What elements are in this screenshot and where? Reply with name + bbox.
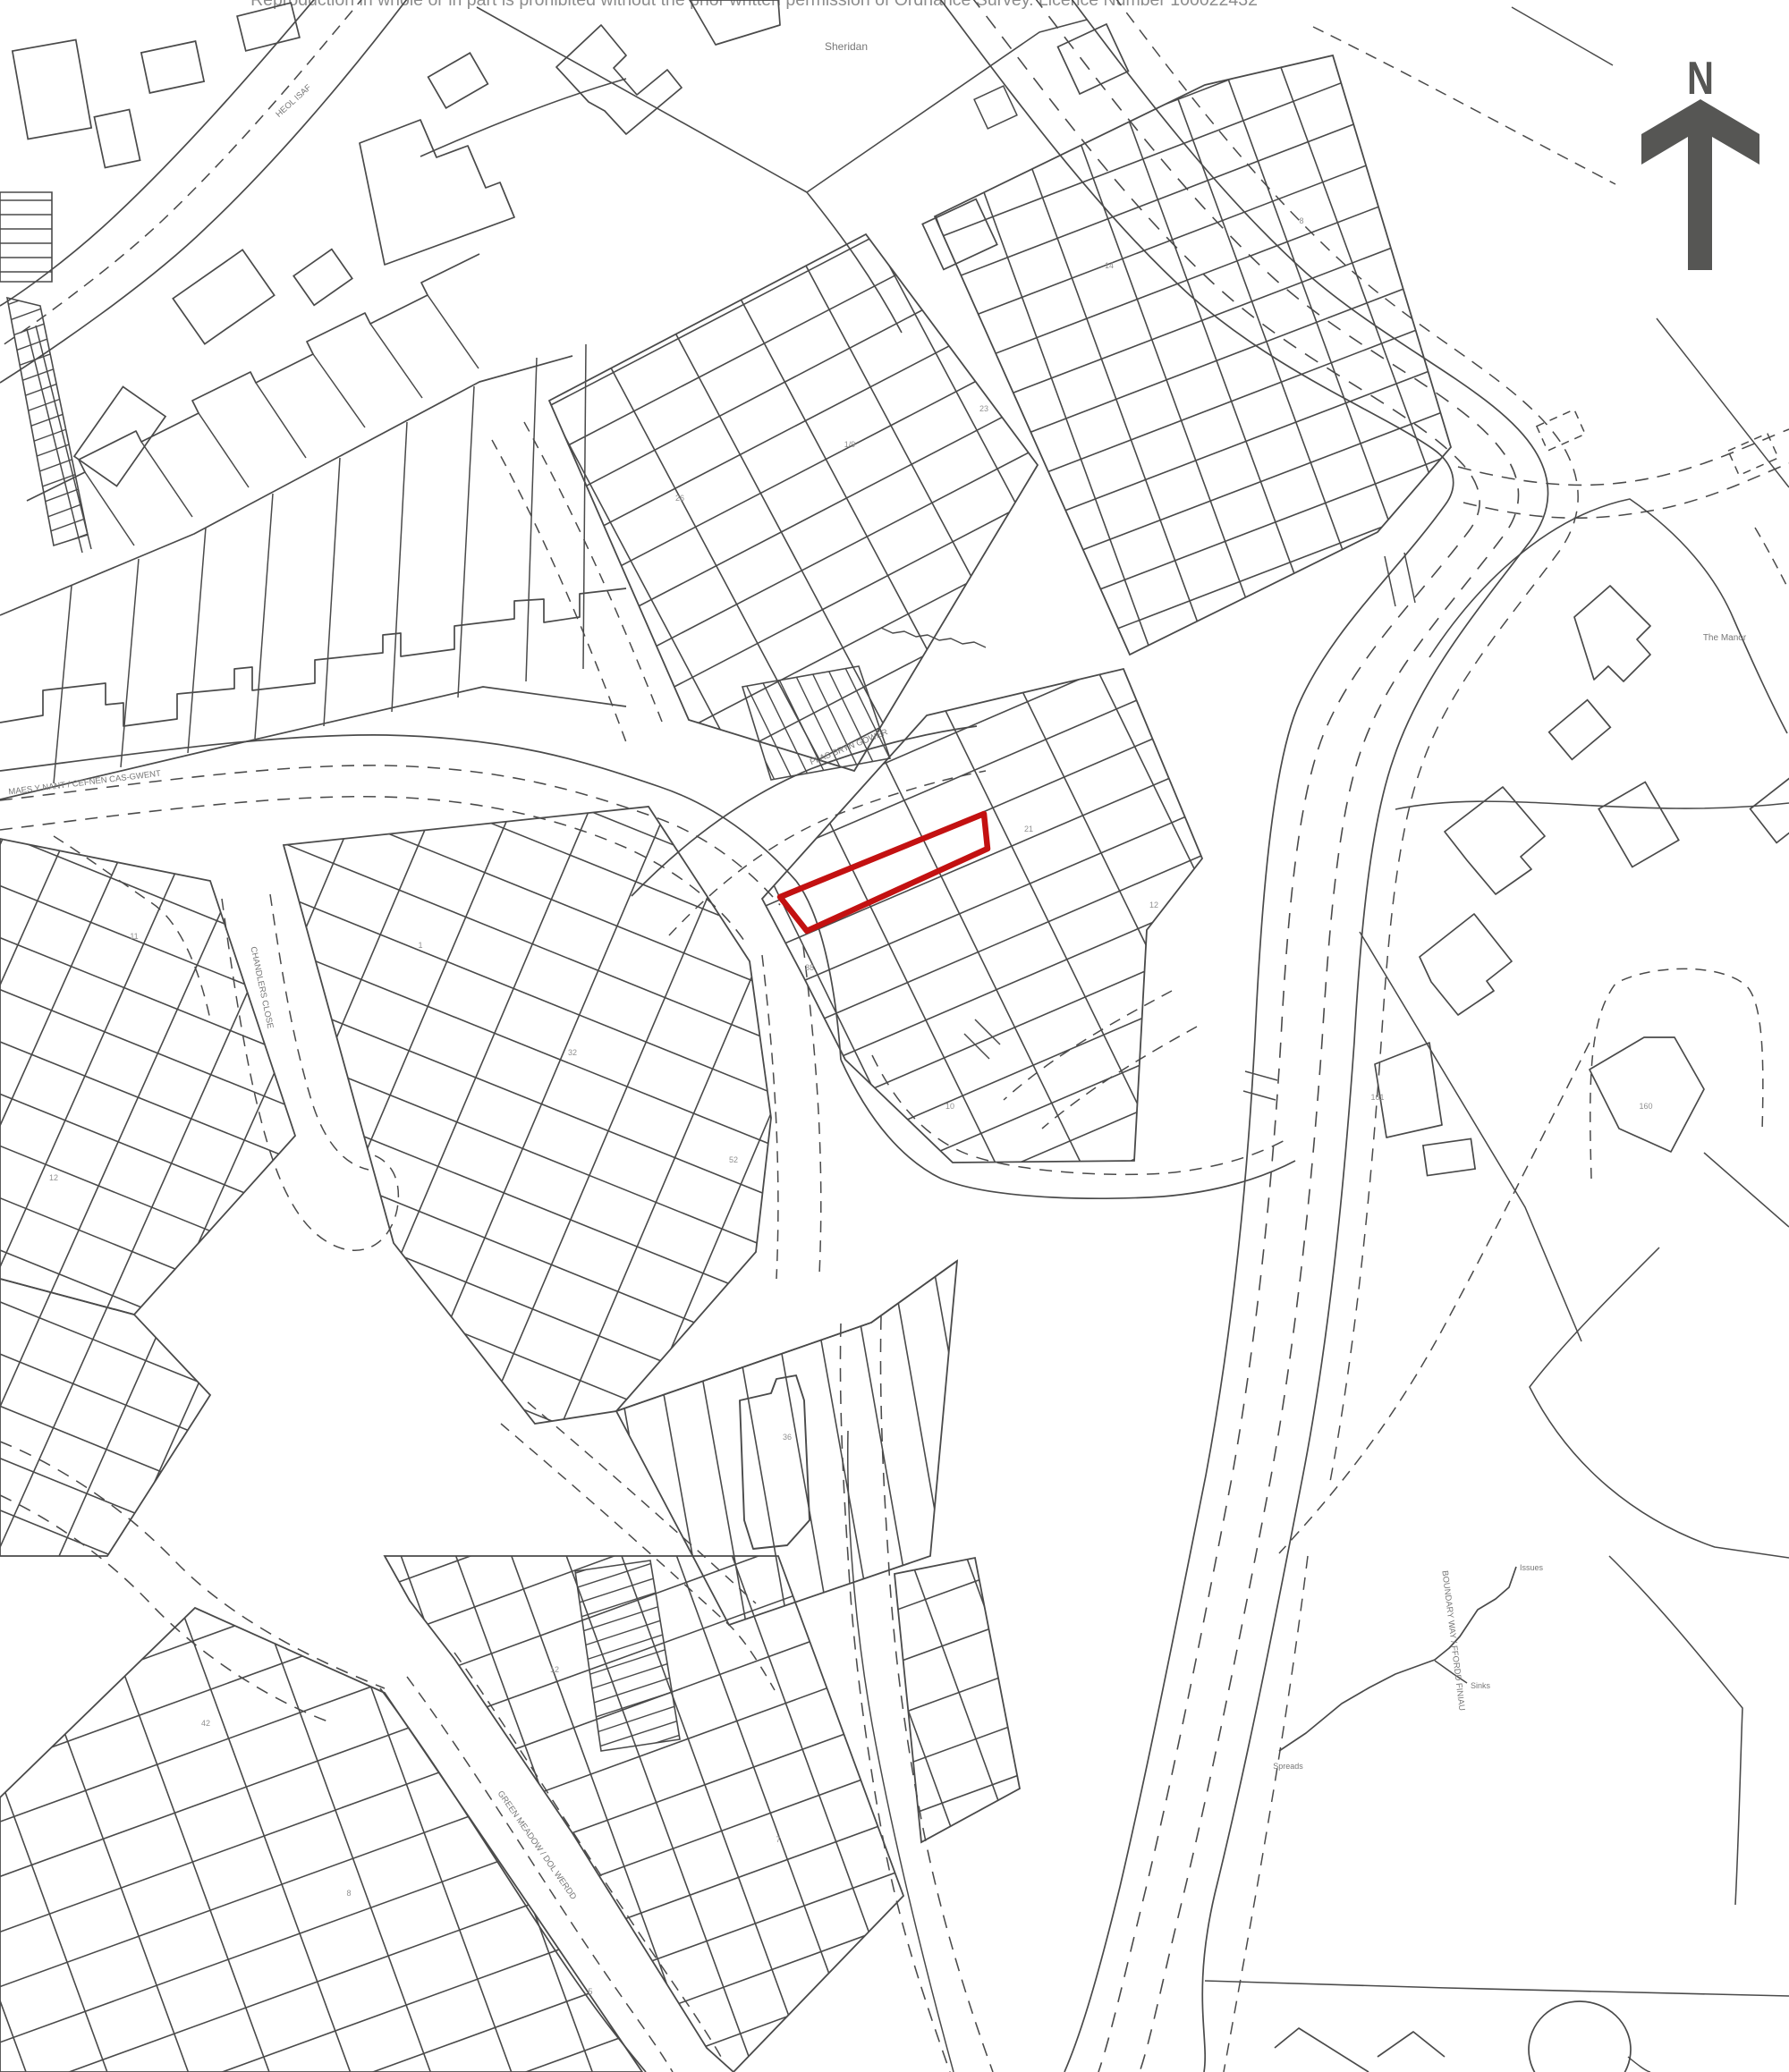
svg-text:32: 32 (568, 1048, 577, 1057)
svg-text:26: 26 (675, 494, 684, 503)
svg-text:N: N (1687, 53, 1714, 105)
svg-text:42: 42 (201, 1719, 210, 1728)
svg-text:Sheridan: Sheridan (825, 40, 868, 53)
svg-text:1: 1 (418, 941, 422, 950)
svg-text:12: 12 (49, 1173, 58, 1182)
svg-text:12: 12 (550, 1665, 559, 1674)
svg-text:10: 10 (945, 1102, 954, 1111)
svg-text:1/9: 1/9 (844, 440, 856, 449)
svg-text:36: 36 (783, 1433, 792, 1442)
svg-text:14: 14 (1105, 261, 1114, 270)
svg-text:8: 8 (1299, 216, 1303, 225)
svg-text:Spreads: Spreads (1273, 1762, 1303, 1771)
svg-text:160: 160 (1639, 1102, 1652, 1111)
svg-text:8: 8 (346, 1889, 351, 1898)
svg-text:Issues: Issues (1520, 1563, 1544, 1572)
svg-text:11: 11 (130, 932, 138, 941)
svg-text:161: 161 (1370, 1093, 1384, 1102)
svg-text:5: 5 (588, 1987, 592, 1996)
svg-text:38: 38 (805, 963, 814, 972)
svg-text:23: 23 (979, 404, 988, 413)
svg-text:Sinks: Sinks (1471, 1681, 1491, 1690)
svg-text:12: 12 (1149, 901, 1158, 909)
svg-text:7: 7 (776, 1835, 780, 1844)
svg-text:21: 21 (1024, 825, 1033, 833)
svg-text:52: 52 (729, 1155, 738, 1164)
svg-text:The Manor: The Manor (1703, 633, 1747, 643)
